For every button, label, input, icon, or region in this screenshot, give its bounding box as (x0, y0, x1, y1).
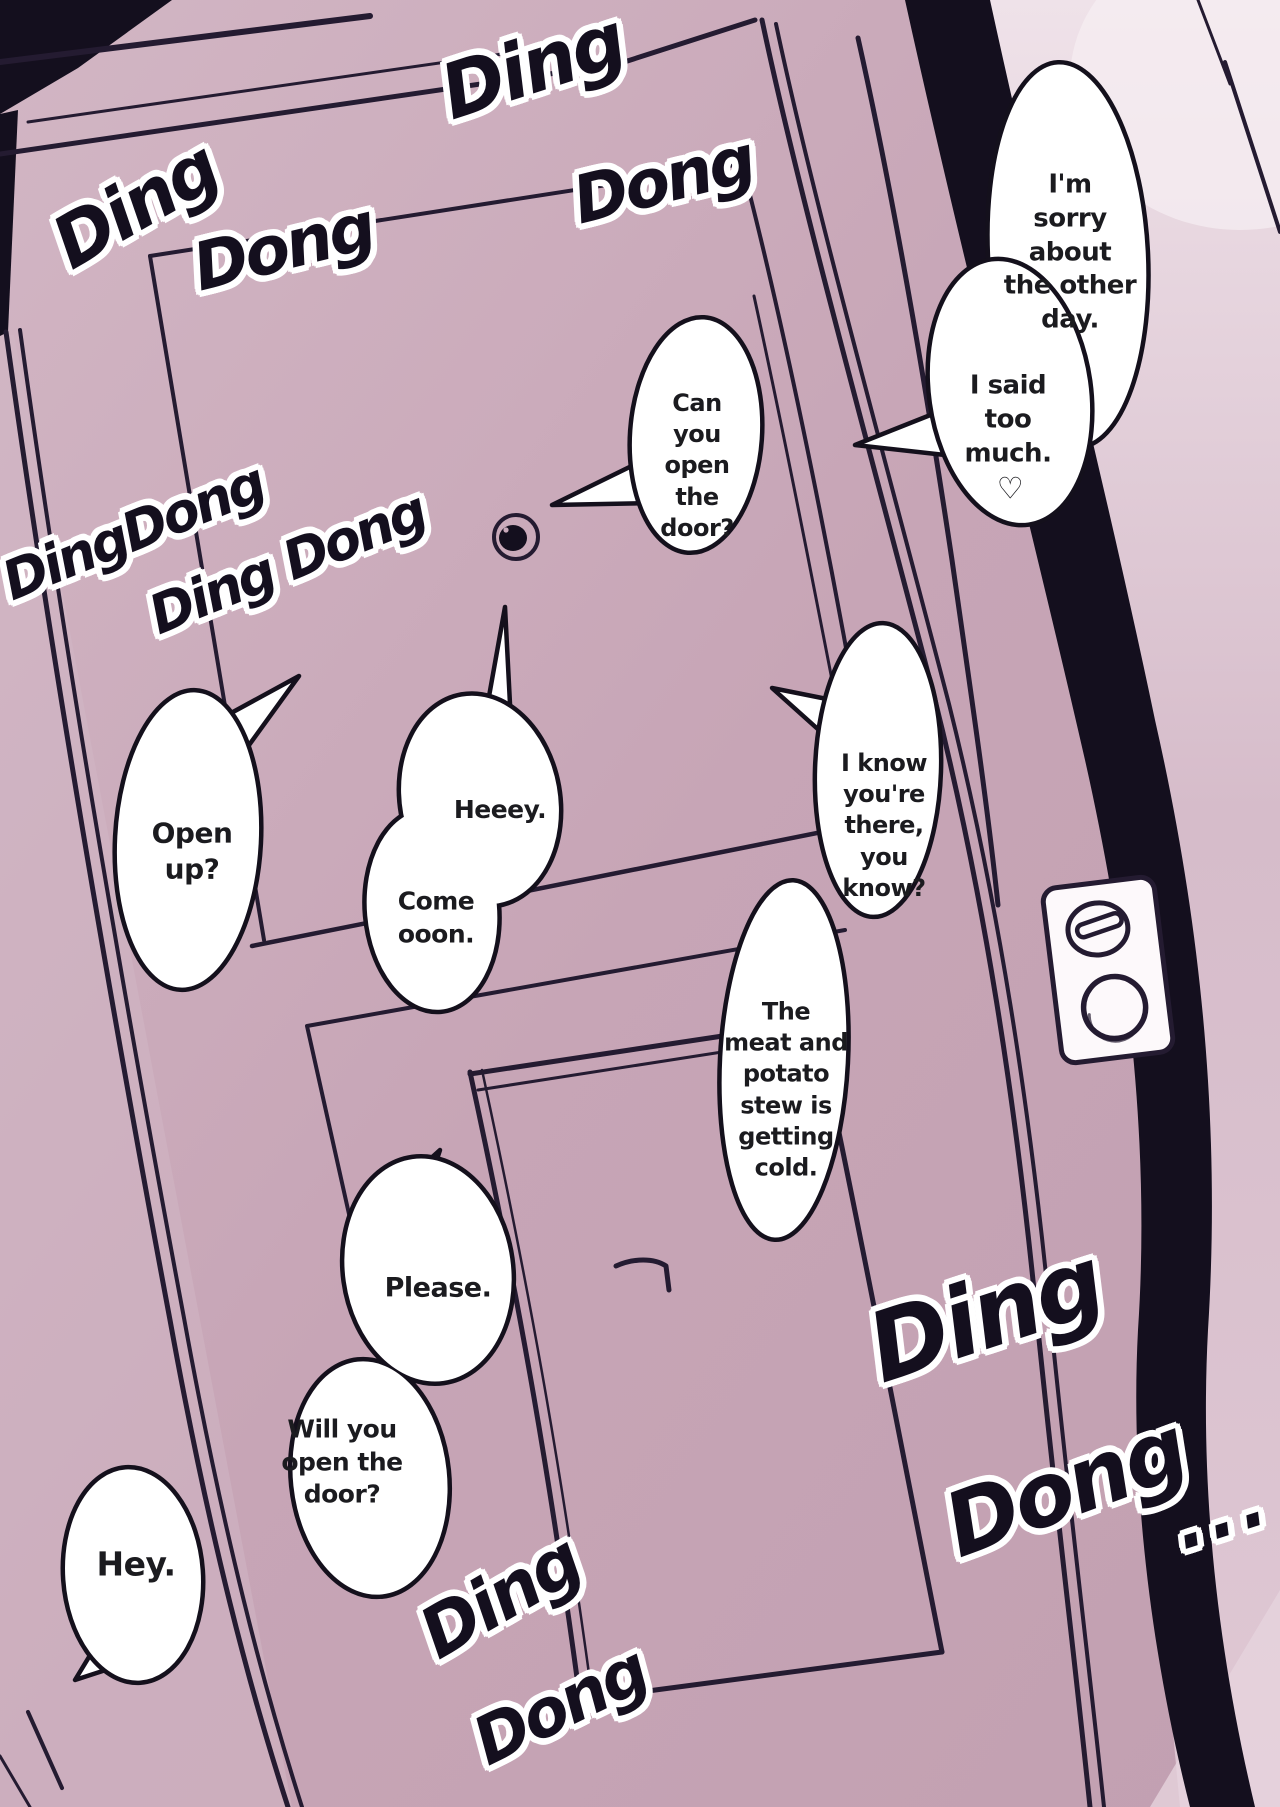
bubble-text-can-you-open: Can you open the door? (660, 388, 733, 544)
bubble-text-will-you-open: Will you open the door? (281, 1413, 402, 1511)
bubble-text-sorry: I'm sorry about the other day. (1004, 169, 1136, 338)
bubble-text-heart: ♡ (997, 470, 1023, 509)
bubble-text-heeey: Heeey. (454, 794, 546, 827)
bubble-text-hey: Hey. (96, 1544, 175, 1587)
bubble-text-i-know: I know you're there, you know? (841, 748, 927, 904)
bubble-text-open-up: Open up? (152, 816, 233, 889)
lock-plate (1042, 876, 1175, 1064)
bubble-text-come-ooon: Come ooon. (398, 886, 475, 951)
bubble-text-stew: The meat and potato stew is getting cold… (724, 996, 848, 1183)
bubble-text-please: Please. (385, 1270, 492, 1305)
comic-page: Ding Dong Ding Dong DingDong Ding Dong D… (0, 0, 1280, 1807)
bubble-text-said-too-much: I said too much. (965, 369, 1052, 470)
